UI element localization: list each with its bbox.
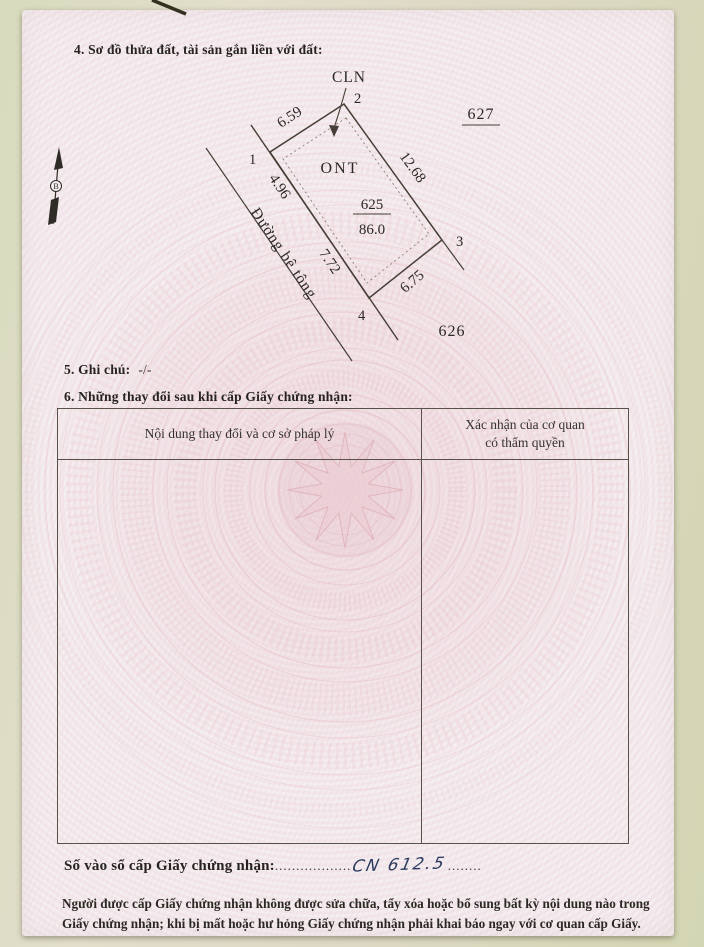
legal-notice-line2: Giấy chứng nhận; khi bị mất hoặc hư hỏng… <box>62 914 654 934</box>
legal-notice: Người được cấp Giấy chứng nhận không đượ… <box>62 894 654 934</box>
photo-background: { "page": { "section4_title": "4. Sơ đồ … <box>0 0 704 947</box>
changes-table: Nội dung thay đổi và cơ sở pháp lý Xác n… <box>57 408 629 844</box>
register-number-handwritten: CN 612.5 <box>351 853 448 875</box>
col1-header-cell: Nội dung thay đổi và cơ sở pháp lý <box>58 409 422 459</box>
register-label: Số vào sổ cấp Giấy chứng nhận: <box>64 858 275 874</box>
page-content: 4. Sơ đồ thửa đất, tài sản gắn liền với … <box>22 10 674 936</box>
col2-header-line2: có thẩm quyền <box>485 434 564 452</box>
section6-title: 6. Những thay đổi sau khi cấp Giấy chứng… <box>64 389 353 405</box>
changes-table-body <box>58 460 628 844</box>
col2-header-line1: Xác nhận của cơ quan <box>465 416 585 434</box>
certificate-page: 4. Sơ đồ thửa đất, tài sản gắn liền với … <box>22 10 674 936</box>
register-line: Số vào sổ cấp Giấy chứng nhận:..........… <box>64 855 664 875</box>
dotted-leader: .................. <box>275 858 352 873</box>
legal-notice-line1: Người được cấp Giấy chứng nhận không đượ… <box>62 894 654 914</box>
col1-header: Nội dung thay đổi và cơ sở pháp lý <box>145 425 335 443</box>
section5-label: 5. Ghi chú: <box>64 362 130 377</box>
col2-header-cell: Xác nhận của cơ quan có thẩm quyền <box>422 409 628 459</box>
col2-body-cell <box>422 460 628 844</box>
section5-row: 5. Ghi chú:-/- <box>64 362 152 378</box>
dotted-leader-end: ........ <box>448 858 482 873</box>
section5-value: -/- <box>138 362 151 377</box>
col1-body-cell <box>58 460 422 844</box>
section4-title: 4. Sơ đồ thửa đất, tài sản gắn liền với … <box>74 42 323 58</box>
changes-table-header: Nội dung thay đổi và cơ sở pháp lý Xác n… <box>58 409 628 460</box>
